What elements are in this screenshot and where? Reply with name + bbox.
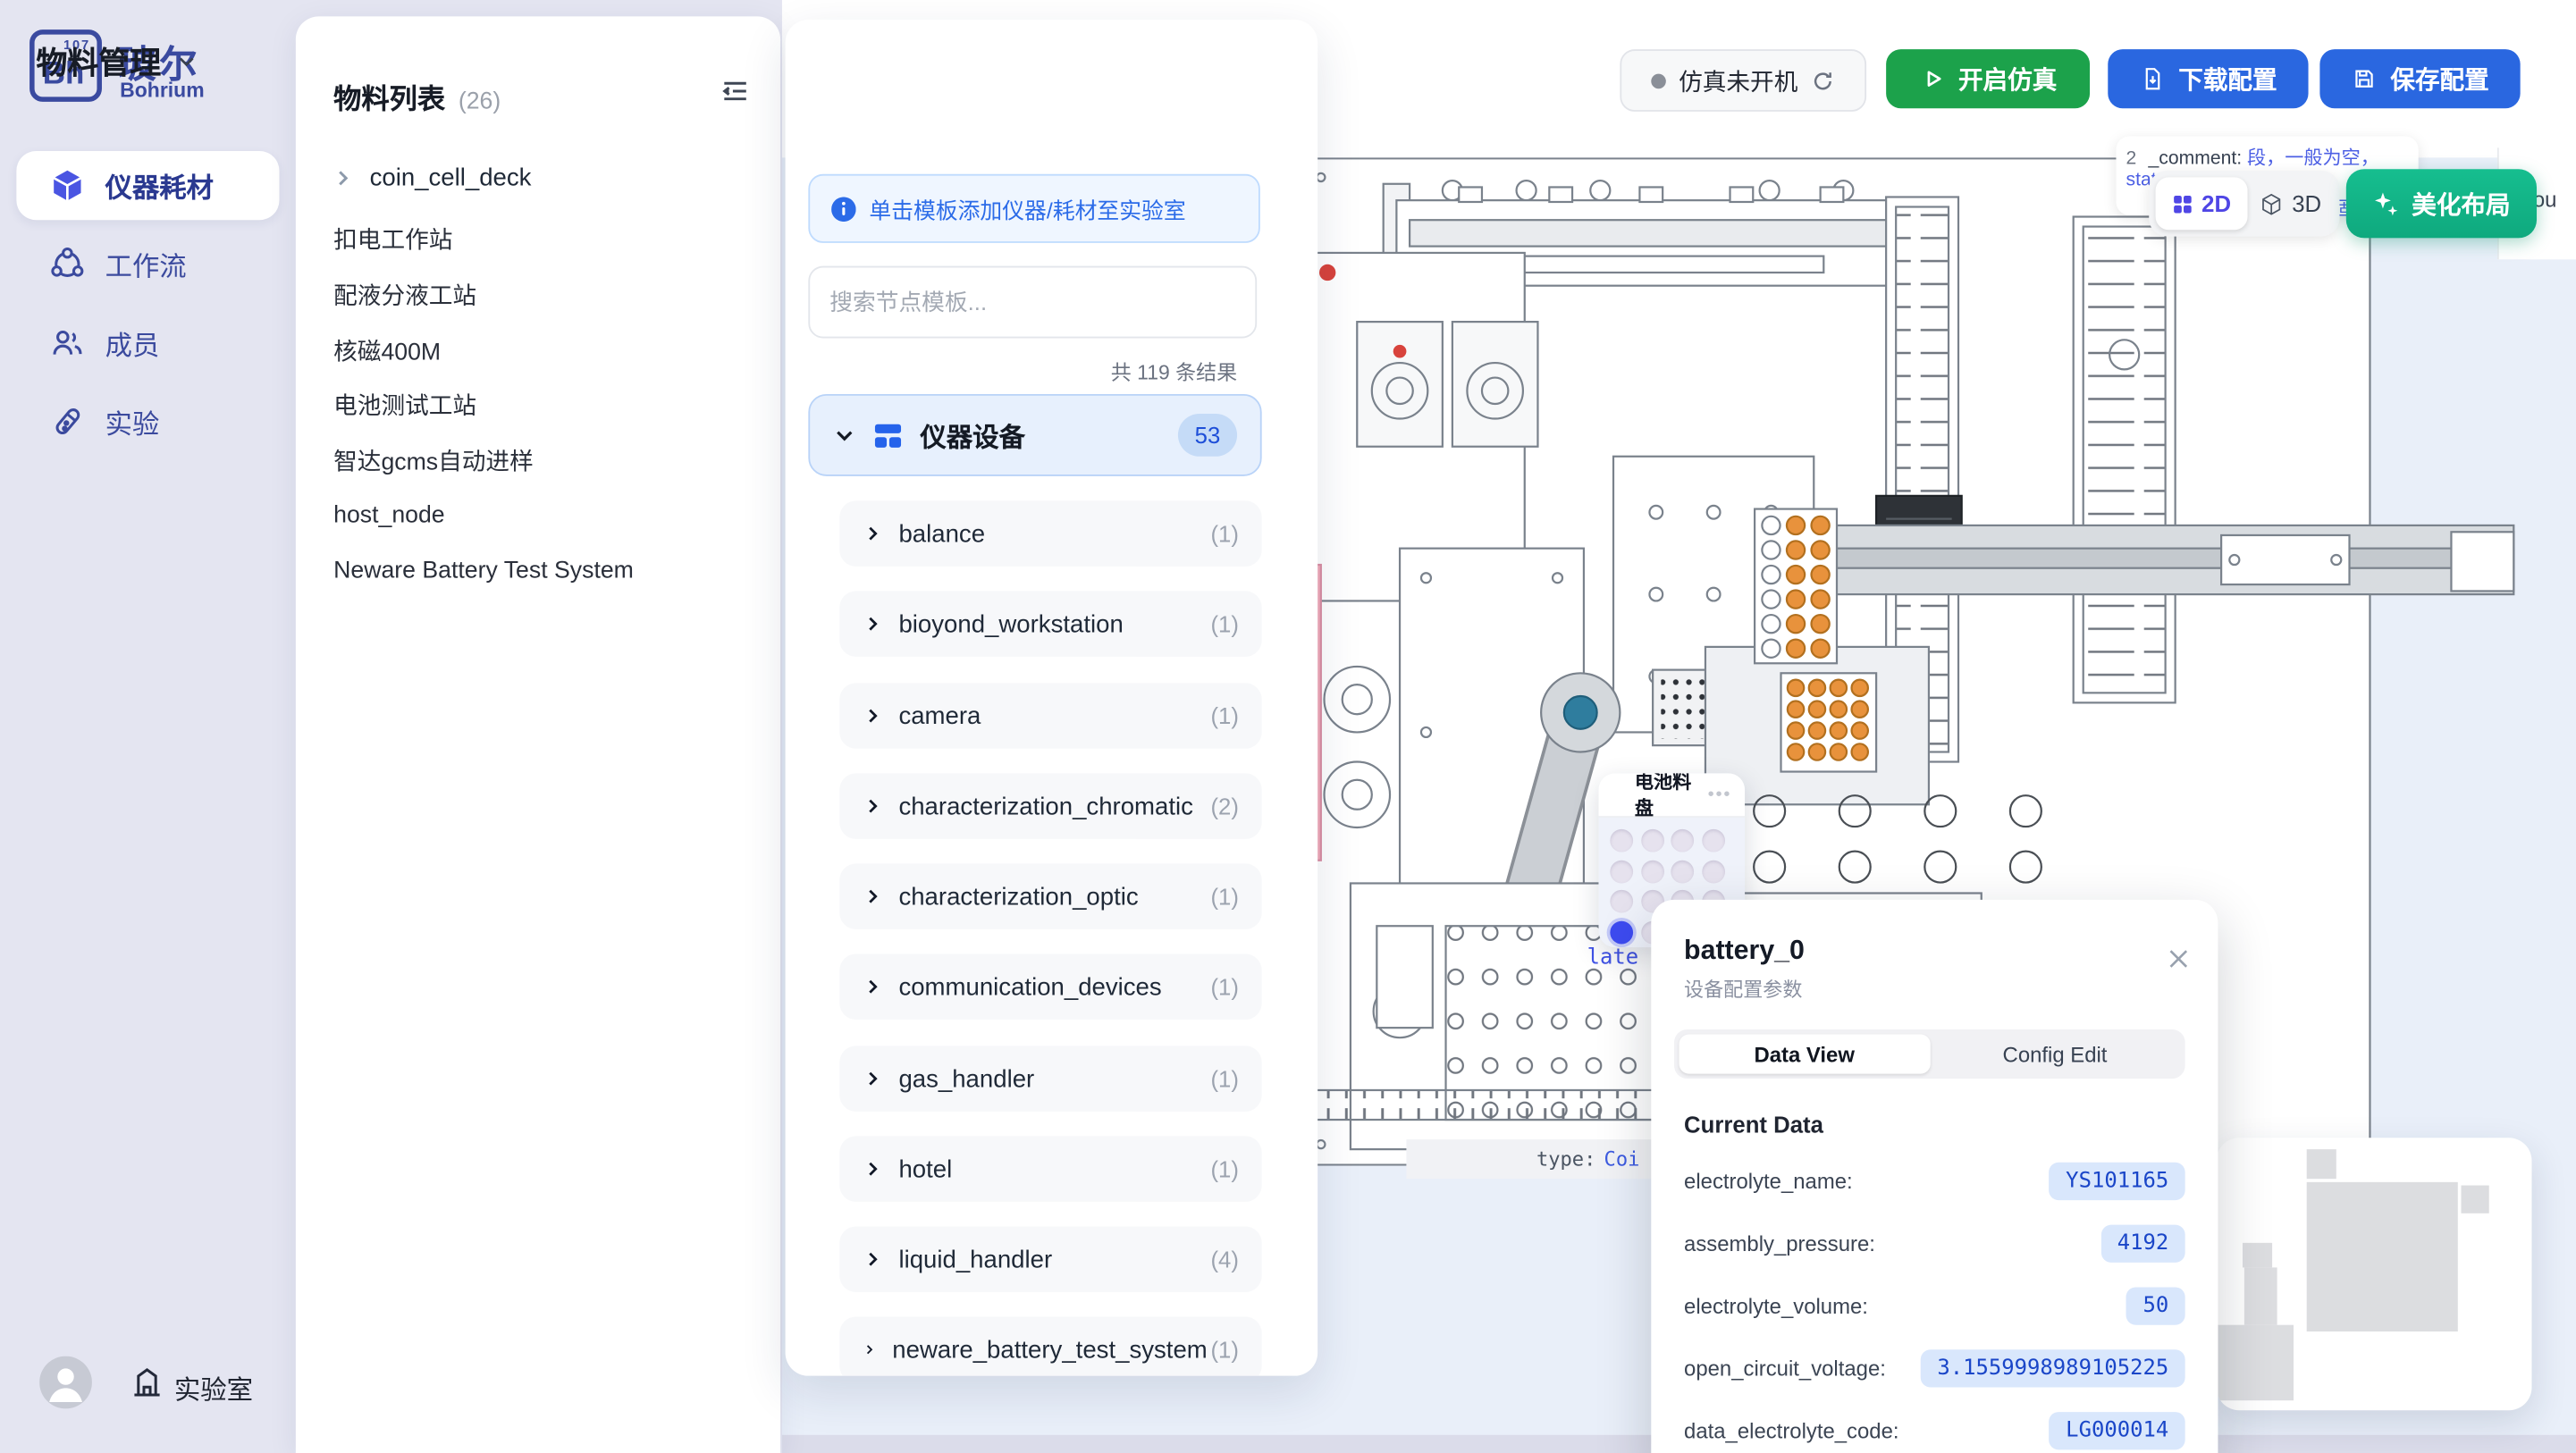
field-label: assembly_pressure: (1684, 1231, 1875, 1256)
list-item[interactable]: Neware Battery Test System (296, 550, 819, 592)
template-item[interactable]: hotel (1) (839, 1136, 1261, 1201)
search-placeholder: 搜索节点模板... (829, 286, 987, 319)
type-label: type: (1536, 1147, 1595, 1171)
sidebar-footer: 实验室 (0, 1347, 296, 1419)
data-field: open_circuit_voltage: 3.1559998989105225 (1684, 1349, 2185, 1387)
field-label: electrolyte_name: (1684, 1169, 1853, 1194)
template-name: liquid_handler (898, 1246, 1194, 1273)
data-field: electrolyte_volume: 50 (1684, 1287, 2185, 1324)
node-type-strip: type: Coi (1406, 1139, 1653, 1179)
cube-3d-icon (2259, 191, 2284, 216)
template-count: (1) (1210, 974, 1238, 1000)
template-name: communication_devices (898, 973, 1194, 1001)
list-item[interactable]: 扣电工作站 (296, 217, 819, 260)
tray-slot[interactable] (1701, 829, 1724, 852)
start-simulation-label: 开启仿真 (1958, 62, 2057, 97)
sidebar: Bh 107 玻尔 Bohrium 仪器耗材 工作流 成员 (0, 0, 296, 1453)
chevron-right-icon (863, 1159, 882, 1179)
template-count: (4) (1210, 1247, 1238, 1272)
list-item[interactable]: 电池测试工站 (296, 382, 819, 425)
avatar[interactable] (39, 1356, 92, 1409)
app-stage: Bh 107 玻尔 Bohrium 仪器耗材 工作流 成员 (0, 0, 2576, 1453)
template-name: neware_battery_test_system (892, 1336, 1207, 1364)
start-simulation-button[interactable]: 开启仿真 (1886, 49, 2090, 108)
template-item[interactable]: characterization_optic (1) (839, 863, 1261, 928)
more-menu-icon[interactable]: ••• (1708, 785, 1732, 804)
list-item-label: 核磁400M (333, 332, 441, 367)
template-count: (1) (1210, 1065, 1238, 1091)
chevron-down-icon (833, 424, 856, 447)
minimap-block (2218, 1325, 2294, 1401)
chevron-right-icon (863, 1249, 882, 1269)
material-list-title: 物料列表(26) (333, 76, 501, 117)
popup-section-title: Current Data (1674, 1112, 2185, 1138)
template-count: (1) (1210, 610, 1238, 636)
minimap-block (2461, 1186, 2488, 1214)
status-text: 仿真未开机 (1679, 63, 1797, 98)
template-item[interactable]: neware_battery_test_system (1) (839, 1317, 1261, 1376)
tray-slot[interactable] (1671, 860, 1694, 883)
download-icon (2139, 65, 2165, 91)
chevron-right-icon (863, 706, 882, 726)
page-title-text: 物料管理 (36, 39, 161, 84)
template-item[interactable]: bioyond_workstation (1) (839, 591, 1261, 656)
list-item-label: 电池测试工站 (333, 387, 476, 422)
template-panel: 单击模板添加仪器/耗材至实验室 搜索节点模板... 共 119 条结果 仪器设备… (786, 20, 1318, 1376)
battery-tray-header: 电池料盘 ••• (1598, 773, 1745, 818)
tray-slot[interactable] (1640, 829, 1663, 852)
popup-tabs: Data View Config Edit (1674, 1029, 2185, 1079)
sparkles-icon (2372, 189, 2400, 217)
template-count: (1) (1210, 1155, 1238, 1181)
info-icon (831, 197, 856, 222)
material-list-title-text: 物料列表 (333, 84, 445, 115)
tray-slot[interactable] (1701, 860, 1724, 883)
list-item[interactable]: 配液分液工站 (296, 273, 819, 315)
minimap-block (2307, 1182, 2458, 1331)
search-input[interactable]: 搜索节点模板... (808, 266, 1257, 339)
template-count: (1) (1210, 883, 1238, 909)
type-value: Coi (1604, 1147, 1640, 1171)
list-item-label: host_node (333, 502, 445, 528)
lab-icon (128, 1363, 165, 1400)
list-item-label: 智达gcms自动进样 (333, 442, 534, 477)
sidebar-item-label: 成员 (105, 323, 160, 363)
template-name: bioyond_workstation (898, 610, 1194, 638)
data-field: electrolyte_name: YS101165 (1684, 1163, 2185, 1200)
chevron-down-icon[interactable] (174, 49, 199, 74)
template-name: gas_handler (898, 1064, 1194, 1092)
list-item[interactable]: host_node (296, 494, 819, 537)
tray-slot[interactable] (1610, 860, 1633, 883)
template-name: hotel (898, 1155, 1194, 1183)
toggle-3d-label: 3D (2292, 190, 2321, 216)
chevron-right-icon (863, 977, 882, 996)
data-field: assembly_pressure: 4192 (1684, 1225, 2185, 1263)
field-label: data_electrolyte_code: (1684, 1418, 1898, 1443)
tab-data-view[interactable]: Data View (1679, 1034, 1930, 1073)
simulation-status-badge: 仿真未开机 (1620, 49, 1866, 112)
save-config-button[interactable]: 保存配置 (2319, 49, 2520, 108)
field-value: 50 (2126, 1287, 2185, 1324)
tab-config-edit[interactable]: Config Edit (1930, 1034, 2180, 1073)
comment-prefix: 2 (2126, 149, 2137, 169)
material-list-count: (26) (459, 88, 501, 114)
template-item[interactable]: liquid_handler (4) (839, 1226, 1261, 1291)
field-value: 4192 (2100, 1225, 2185, 1263)
field-label: open_circuit_voltage: (1684, 1356, 1886, 1382)
template-item[interactable]: communication_devices (1) (839, 953, 1261, 1019)
data-field: data_electrolyte_code: LG000014 (1684, 1412, 2185, 1449)
toggle-2d[interactable]: 2D (2156, 177, 2248, 230)
template-count: (1) (1210, 520, 1238, 546)
field-value: 3.1559998989105225 (1921, 1349, 2185, 1387)
field-value: LG000014 (2050, 1412, 2185, 1449)
sidebar-item-experiments[interactable]: 实验 (16, 388, 279, 457)
list-item[interactable]: coin_cell_deck (296, 156, 817, 199)
workflow-icon (49, 247, 85, 282)
status-dot-icon (1651, 73, 1666, 88)
toggle-2d-label: 2D (2201, 190, 2231, 216)
list-item-label: 扣电工作站 (333, 221, 452, 256)
template-item[interactable]: gas_handler (1) (839, 1046, 1261, 1111)
tray-slot[interactable] (1610, 890, 1633, 913)
toggle-3d[interactable]: 3D (2248, 190, 2334, 216)
device-config-popup: battery_0 设备配置参数 Data View Config Edit C… (1651, 900, 2218, 1453)
download-config-label: 下载配置 (2178, 62, 2277, 97)
battery-tray-title: 电池料盘 (1635, 773, 1708, 820)
page-title[interactable]: 物料管理 (36, 39, 198, 84)
category-name: 仪器设备 (920, 416, 1161, 455)
minimap-block (2244, 1267, 2277, 1324)
beautify-layout-label: 美化布局 (2412, 187, 2510, 222)
sidebar-item-workflow[interactable]: 工作流 (16, 230, 279, 298)
chevron-right-icon (863, 1069, 882, 1088)
minimap-block (2243, 1243, 2272, 1268)
template-count: (1) (1210, 1337, 1238, 1363)
beautify-layout-button[interactable]: 美化布局 (2346, 169, 2537, 238)
chevron-right-icon (863, 524, 882, 543)
layout-grid-icon (872, 419, 904, 450)
chevron-right-icon (863, 614, 882, 634)
comment-label: _comment: (2149, 149, 2243, 169)
popup-subtitle: 设备配置参数 (1684, 975, 2185, 1003)
info-banner-text: 单击模板添加仪器/耗材至实验室 (869, 192, 1185, 225)
field-label: electrolyte_volume: (1684, 1294, 1868, 1319)
chevron-right-icon (863, 796, 882, 816)
members-icon (49, 325, 85, 361)
cube-icon (49, 167, 85, 203)
template-count: (1) (1210, 702, 1238, 728)
popup-title: battery_0 (1684, 936, 2185, 967)
chevron-right-icon (863, 1340, 876, 1359)
list-item-label: 配液分液工站 (333, 277, 476, 312)
view-mode-toggle: 2D 3D (2149, 171, 2339, 236)
save-config-label: 保存配置 (2390, 62, 2488, 97)
template-item[interactable]: balance (1) (839, 500, 1261, 566)
tray-slot[interactable] (1640, 860, 1663, 883)
grid-2d-icon (2172, 193, 2193, 214)
list-collapse-icon[interactable] (720, 76, 751, 107)
material-list-panel: 物料列表(26) coin_cell_deck 扣电工作站 配液分液工站 核磁4… (296, 16, 780, 1453)
template-item[interactable]: camera (1) (839, 683, 1261, 748)
lab-label[interactable]: 实验室 (174, 1367, 253, 1407)
sidebar-item-label: 仪器耗材 (105, 166, 214, 206)
list-item-label: Neware Battery Test System (333, 559, 634, 584)
sidebar-item-label: 工作流 (105, 245, 187, 284)
results-count: 共 119 条结果 (808, 355, 1237, 386)
tray-slot[interactable] (1610, 829, 1633, 852)
template-name: camera (898, 701, 1194, 729)
template-name: characterization_optic (898, 883, 1194, 911)
chevron-right-icon[interactable] (332, 166, 353, 188)
template-name: characterization_chromatic (898, 792, 1207, 819)
list-item[interactable]: 智达gcms自动进样 (296, 439, 819, 482)
minimap-block (2307, 1149, 2336, 1179)
sidebar-item-members[interactable]: 成员 (16, 308, 279, 377)
list-item-label: coin_cell_deck (370, 164, 532, 191)
download-config-button[interactable]: 下载配置 (2108, 49, 2308, 108)
refresh-icon[interactable] (1811, 68, 1836, 93)
sidebar-item-instruments[interactable]: 仪器耗材 (16, 151, 279, 220)
save-icon (2351, 65, 2377, 91)
category-count-badge: 53 (1178, 414, 1237, 457)
info-banner: 单击模板添加仪器/耗材至实验室 (808, 174, 1259, 243)
app-viewport: Bh 107 玻尔 Bohrium 仪器耗材 工作流 成员 (0, 0, 2576, 1453)
testtube-icon (49, 404, 85, 440)
list-item[interactable]: 核磁400M (296, 328, 819, 371)
category-instruments[interactable]: 仪器设备 53 (808, 394, 1261, 476)
field-value: YS101165 (2050, 1163, 2185, 1200)
minimap[interactable] (2217, 1138, 2532, 1410)
tray-slot-selected[interactable] (1610, 920, 1633, 944)
play-icon (1919, 65, 1945, 91)
template-count: (2) (1210, 793, 1238, 819)
sidebar-item-label: 实验 (105, 402, 160, 441)
template-name: balance (898, 520, 1194, 548)
plate-clipped-text: late (1587, 945, 1639, 970)
close-icon[interactable] (2166, 945, 2192, 971)
tray-slot[interactable] (1671, 829, 1694, 852)
chevron-right-icon (863, 886, 882, 906)
template-item[interactable]: characterization_chromatic (2) (839, 773, 1261, 838)
